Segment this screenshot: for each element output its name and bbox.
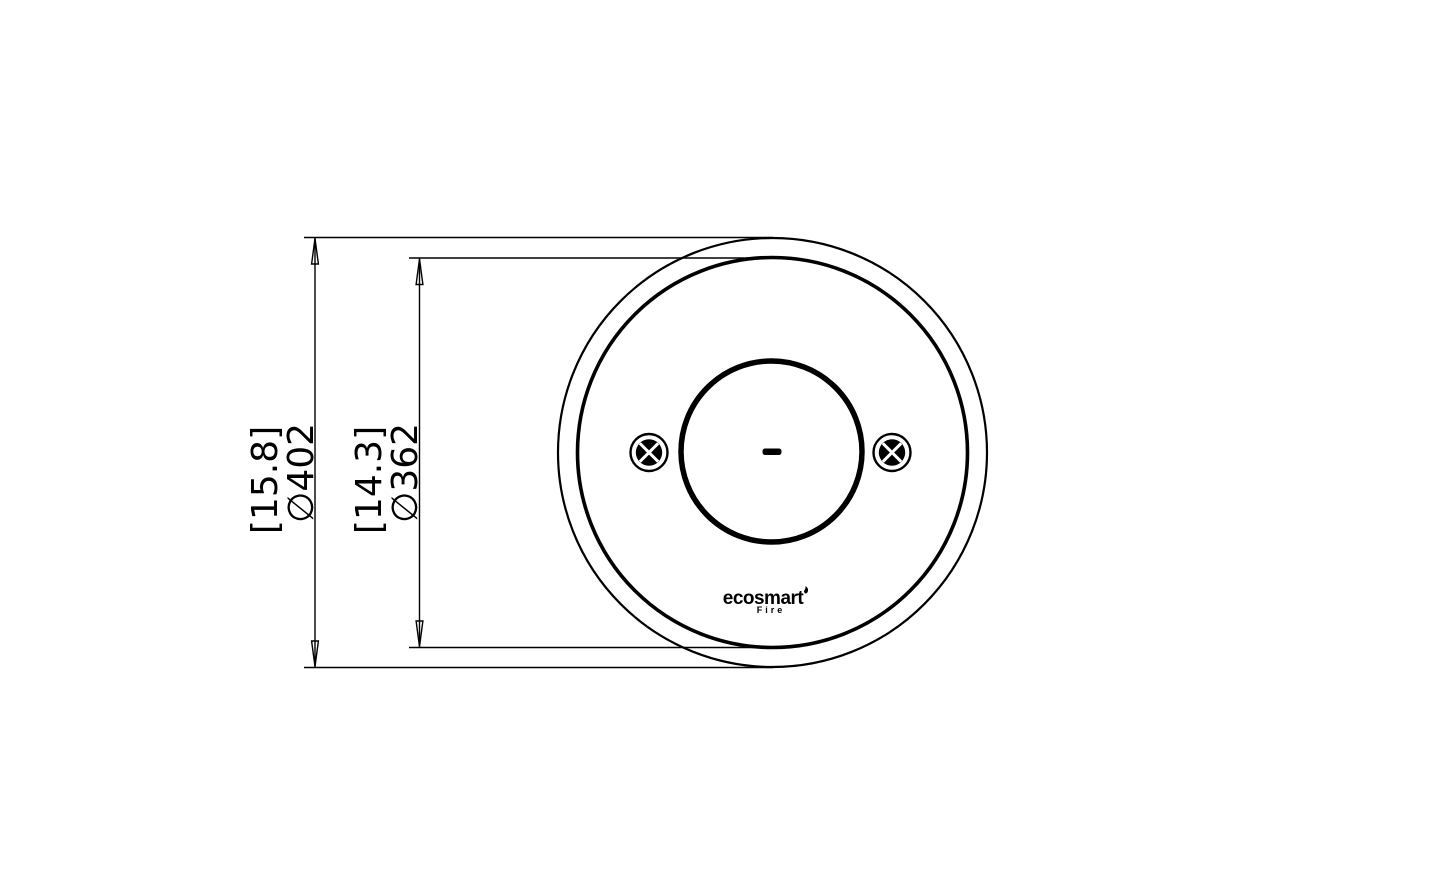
flame-mark-icon xyxy=(804,586,808,594)
outer-dim-imperial-label: [15.8] xyxy=(245,426,286,534)
screw-right-icon xyxy=(874,434,911,471)
inner-diameter-dimension xyxy=(409,258,773,648)
outer-dim-metric-label: ∅402 xyxy=(281,423,322,523)
inner-dim-metric-label: ∅362 xyxy=(385,423,426,523)
center-dash-mark xyxy=(763,449,782,456)
inner-dim-imperial-label: [14.3] xyxy=(349,426,390,534)
drawing-canvas: [15.8] ∅402 [14.3] ∅362 ecosmart Fire xyxy=(0,0,1445,893)
logo-sub-text: Fire xyxy=(757,605,786,615)
technical-drawing-plan-view: [15.8] ∅402 [14.3] ∅362 ecosmart Fire xyxy=(0,0,1445,893)
screw-left-icon xyxy=(631,434,668,471)
brand-logo: ecosmart Fire xyxy=(723,586,808,615)
